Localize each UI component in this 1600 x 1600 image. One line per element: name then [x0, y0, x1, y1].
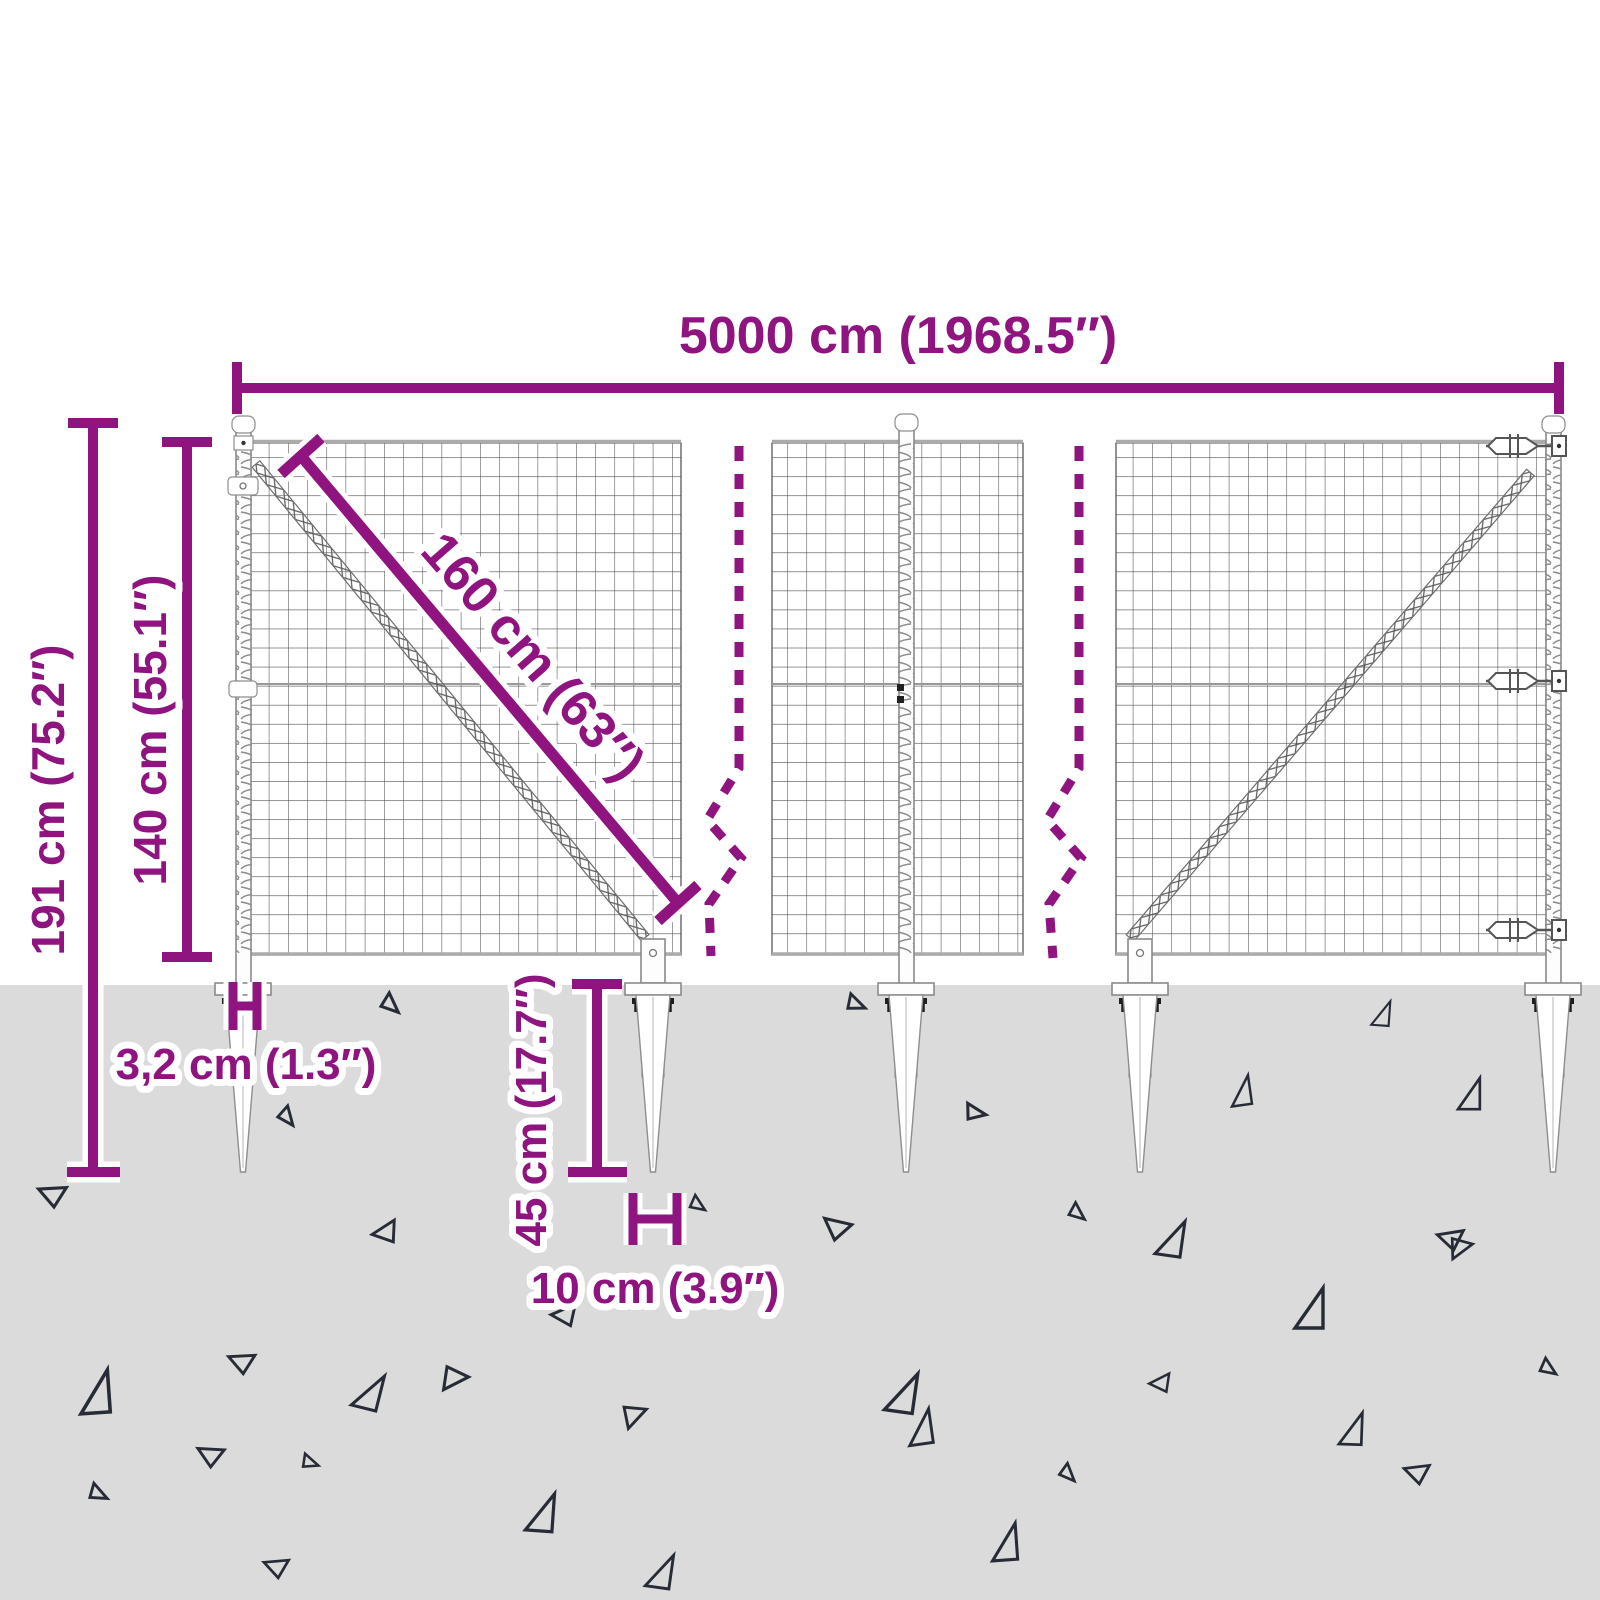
- spike-bracket: [1128, 939, 1152, 983]
- total-width-label: 5000 cm (1968.5″): [679, 307, 1117, 365]
- turnbuckle-bottom: [1486, 918, 1566, 942]
- post-width-label: 3,2 cm (1.3″): [116, 1040, 377, 1089]
- post-clamp: [229, 681, 257, 697]
- fence-dimension-diagram: 5000 cm (1968.5″) 191 cm (75.2″) 140 cm …: [0, 0, 1600, 1600]
- mesh-panel-left: [250, 442, 681, 956]
- dimension-total-width: [237, 362, 1559, 414]
- spike-bracket: [641, 939, 665, 983]
- spike-length-label: 45 cm (17.7″): [507, 973, 556, 1246]
- post-cap: [1542, 416, 1565, 433]
- mesh-height-label: 140 cm (55.1″): [124, 575, 176, 886]
- post-cap: [895, 414, 918, 431]
- total-height-label: 191 cm (75.2″): [22, 645, 74, 956]
- break-line-right: [1047, 446, 1081, 958]
- post-cap: [232, 416, 255, 433]
- break-line-left: [707, 446, 741, 956]
- brace-clamp: [228, 477, 258, 495]
- diagram-stage: 5000 cm (1968.5″) 191 cm (75.2″) 140 cm …: [0, 0, 1600, 1600]
- fence-post-middle: [895, 414, 918, 985]
- turnbuckle-middle: [1486, 669, 1566, 693]
- turnbuckle-top: [1486, 434, 1566, 458]
- post-wire-spiral: [236, 443, 252, 953]
- spike-width-label: 10 cm (3.9″): [531, 1264, 780, 1313]
- post-wire-spiral: [1545, 443, 1561, 953]
